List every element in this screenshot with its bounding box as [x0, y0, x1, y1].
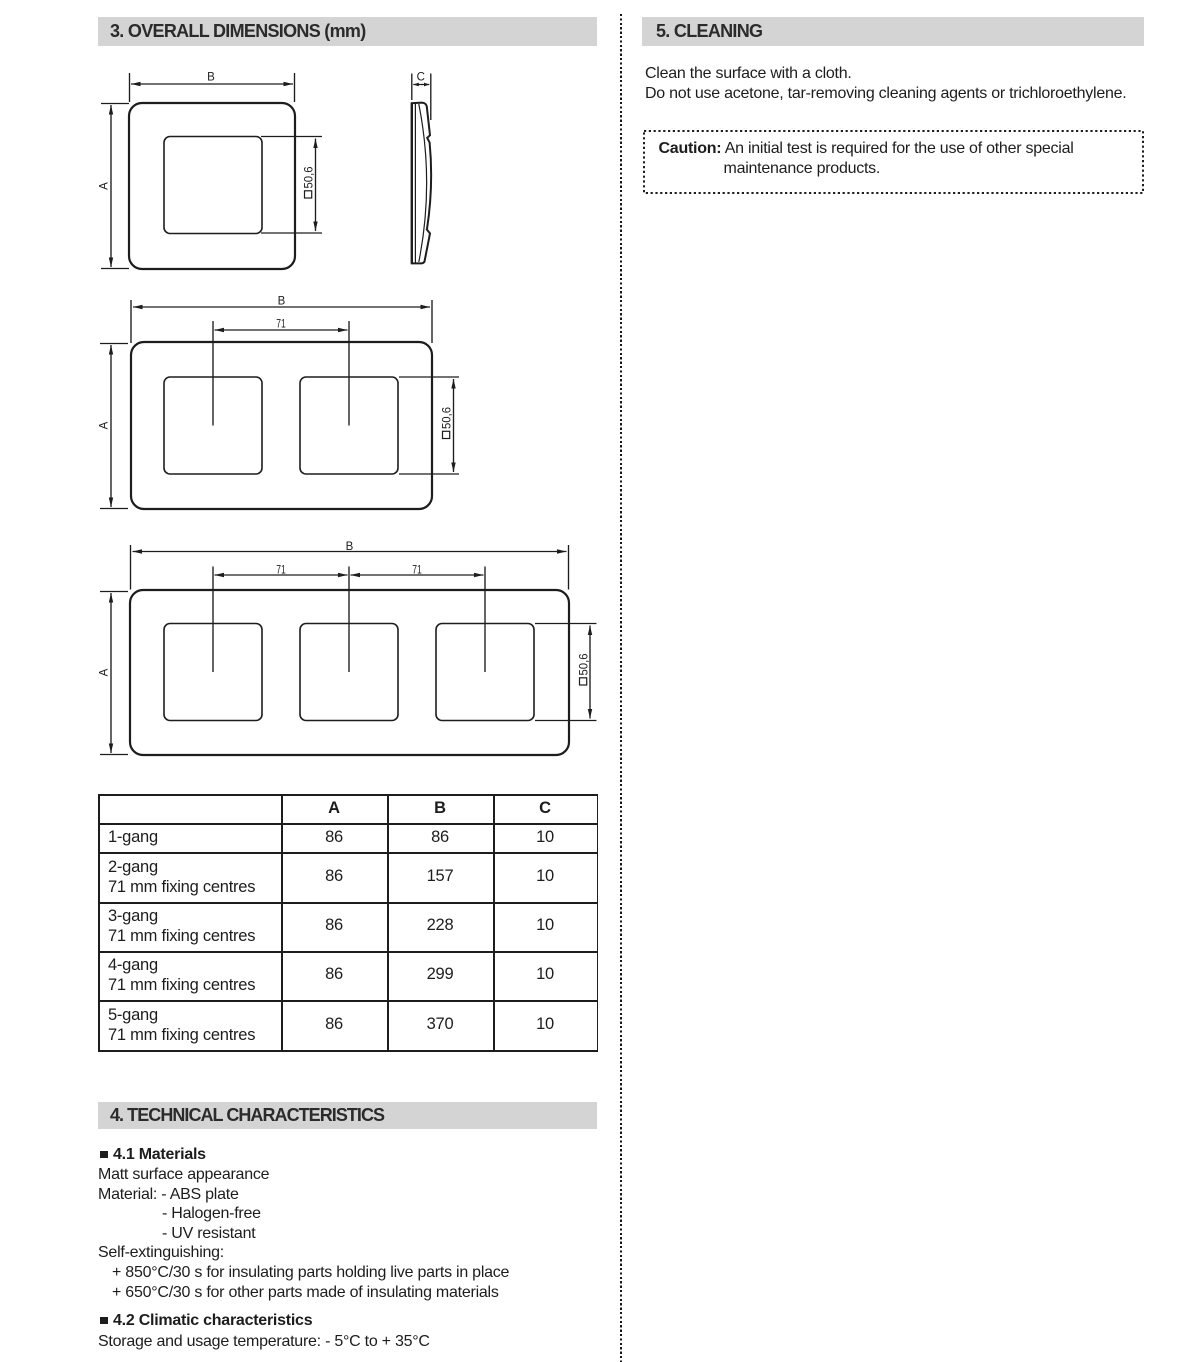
svg-text:50,6: 50,6 [579, 654, 591, 676]
svg-text:A: A [99, 668, 111, 676]
svg-text:C: C [417, 72, 425, 84]
svg-text:A: A [99, 421, 111, 429]
svg-text:50,6: 50,6 [304, 167, 316, 189]
svg-text:71: 71 [276, 319, 286, 331]
svg-text:B: B [278, 296, 286, 308]
svg-text:B: B [207, 72, 215, 84]
svg-text:B: B [346, 541, 354, 553]
svg-text:50,6: 50,6 [442, 407, 454, 429]
svg-text:71: 71 [412, 565, 422, 577]
svg-text:71: 71 [276, 565, 286, 577]
svg-text:A: A [99, 182, 111, 190]
